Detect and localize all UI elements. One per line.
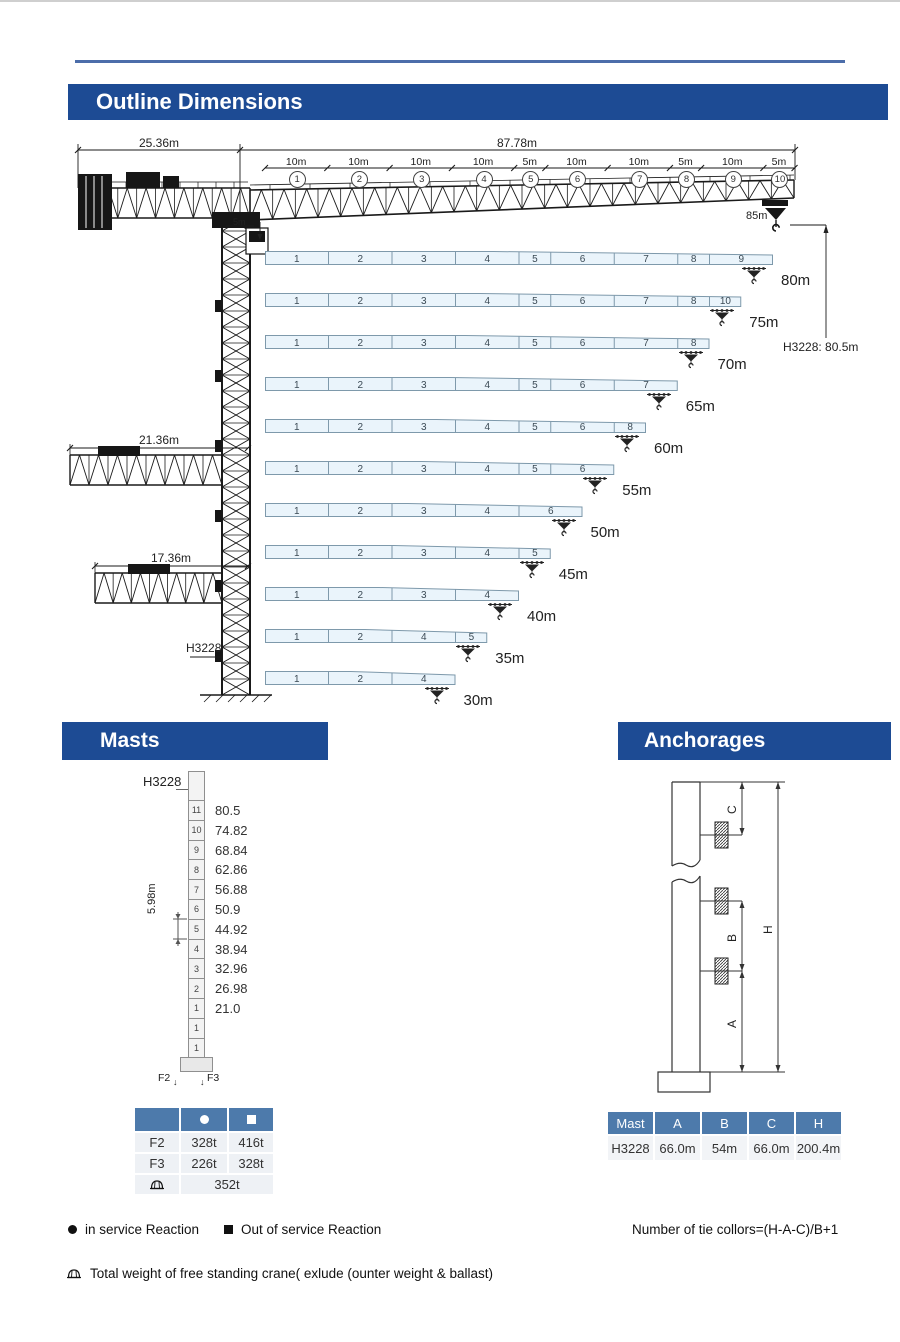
segment-length-label: 10m bbox=[619, 156, 659, 168]
jib-segment-number: 2 bbox=[357, 296, 363, 307]
reaction-f3-label: F3 bbox=[207, 1072, 219, 1084]
jib-length-label: 60m bbox=[654, 440, 683, 457]
masts-title: Masts bbox=[100, 729, 160, 753]
jib-segment-number: 9 bbox=[738, 254, 744, 265]
anchor-tie-collar-2 bbox=[715, 888, 728, 914]
jib-root-dim-label: 5m bbox=[233, 217, 246, 227]
mast-height-value: 32.96 bbox=[215, 961, 248, 976]
jib-segment-number: 4 bbox=[484, 590, 490, 601]
masts-table-total-icon bbox=[135, 1175, 179, 1194]
mast-height-value: 44.92 bbox=[215, 922, 248, 937]
jib-segment-number: 5 bbox=[532, 422, 538, 433]
mast-section-cell: 1 bbox=[188, 1038, 205, 1059]
jib-length-label: 40m bbox=[527, 608, 556, 625]
mast-height-value: 50.9 bbox=[215, 902, 240, 917]
outline-dimensions-header: Outline Dimensions bbox=[68, 84, 888, 120]
mast-model-label: H3228 bbox=[143, 774, 181, 789]
jib-segment-number: 3 bbox=[421, 422, 427, 433]
jib-config-bar: 1245 bbox=[265, 628, 487, 645]
jib-length-label: 30m bbox=[464, 692, 493, 709]
dim-a-label: A bbox=[725, 1020, 739, 1028]
counter-jib-dimension-label: 25.36m bbox=[119, 136, 199, 150]
legend-out-service: Out of service Reaction bbox=[224, 1222, 381, 1237]
jib-segment-number: 5 bbox=[532, 338, 538, 349]
jib-length-label: 75m bbox=[749, 314, 778, 331]
segment-length-label: 5m bbox=[510, 156, 550, 168]
jib-segment-number: 1 bbox=[294, 590, 300, 601]
jib-segment-number: 6 bbox=[580, 422, 586, 433]
jib-segment-number: 3 bbox=[421, 380, 427, 391]
tie-collar-formula-text: Number of tie collors=(H-A-C)/B+1 bbox=[632, 1222, 838, 1237]
crane-weight-icon bbox=[66, 1267, 82, 1280]
anchorages-table-header: C bbox=[749, 1112, 794, 1134]
legend-in-service-text: in service Reaction bbox=[85, 1222, 199, 1237]
jib-segment-number: 8 bbox=[691, 254, 697, 265]
jib-segment-number: 8 bbox=[691, 296, 697, 307]
segment-number-badge: 8 bbox=[678, 171, 695, 188]
jib-segment-number: 3 bbox=[421, 464, 427, 475]
mast-section-cell: 11 bbox=[188, 800, 205, 821]
anchorage-diagram: C B A H bbox=[600, 770, 880, 1100]
masts-table-circle-value: 226t bbox=[181, 1154, 227, 1173]
jib-segment-number: 1 bbox=[294, 254, 300, 265]
catalog-page: Outline Dimensions 25.36m 87.78m 85m H32… bbox=[0, 0, 900, 1342]
jib-config-bar: 123456 bbox=[265, 460, 614, 477]
segment-length-label: 10m bbox=[401, 156, 441, 168]
mast-section-cell: 5 bbox=[188, 919, 205, 940]
legend-total-weight-text: Total weight of free standing crane( exl… bbox=[90, 1266, 493, 1281]
jib-segment-number: 6 bbox=[548, 506, 554, 517]
segment-number-badge: 6 bbox=[569, 171, 586, 188]
legend-in-service: in service Reaction bbox=[68, 1222, 199, 1237]
jib-length-label: 50m bbox=[591, 524, 620, 541]
jib-segment-number: 5 bbox=[532, 464, 538, 475]
square-icon bbox=[224, 1225, 233, 1234]
legend-total-weight: Total weight of free standing crane( exl… bbox=[66, 1266, 493, 1281]
jib-segment-number: 1 bbox=[294, 506, 300, 517]
mast-section-cell: 10 bbox=[188, 820, 205, 841]
jib-segment-number: 7 bbox=[643, 380, 649, 391]
mast-height-value: 21.0 bbox=[215, 1001, 240, 1016]
mast-height-value: 38.94 bbox=[215, 942, 248, 957]
anchorages-table-header: A bbox=[655, 1112, 700, 1134]
anchorages-table-value: 66.0m bbox=[655, 1136, 700, 1160]
jib-segment-number: 3 bbox=[421, 254, 427, 265]
hook-trolley-icon bbox=[551, 518, 577, 537]
jib-config-bar: 124 bbox=[265, 670, 456, 687]
jib-segment-number: 1 bbox=[294, 548, 300, 559]
anchorages-table-value: H3228 bbox=[608, 1136, 653, 1160]
jib-segment-number: 1 bbox=[294, 632, 300, 643]
jib-segment-number: 7 bbox=[643, 296, 649, 307]
jib-segment-number: 4 bbox=[484, 296, 490, 307]
masts-table-total-value: 352t bbox=[181, 1175, 273, 1194]
segment-length-label: 10m bbox=[463, 156, 503, 168]
mast-section-cell: 4 bbox=[188, 939, 205, 960]
jib-segment-number: 4 bbox=[484, 422, 490, 433]
anchor-tie-collar-3 bbox=[715, 958, 728, 984]
jib-segment-number: 2 bbox=[357, 548, 363, 559]
jib-config-bar: 1234 bbox=[265, 586, 519, 603]
jib-dimension-label: 87.78m bbox=[477, 136, 557, 150]
jib-config-bar: 12345 bbox=[265, 544, 551, 561]
mast-height-value: 26.98 bbox=[215, 981, 248, 996]
tie-collar-formula: Number of tie collors=(H-A-C)/B+1 bbox=[632, 1222, 838, 1237]
jib-config-bar: 12346 bbox=[265, 502, 583, 519]
mast-base-block bbox=[180, 1057, 213, 1072]
jib-segment-number: 6 bbox=[580, 254, 586, 265]
mast-top-stub bbox=[188, 771, 205, 801]
jib-config-bar: 12345678 bbox=[265, 334, 710, 351]
anchorages-table-value: 54m bbox=[702, 1136, 747, 1160]
legend-out-service-text: Out of service Reaction bbox=[241, 1222, 381, 1237]
masts-header: Masts bbox=[62, 722, 328, 760]
jib-segment-number: 5 bbox=[532, 548, 538, 559]
jib-segment-number: 2 bbox=[357, 674, 363, 685]
reaction-f2-label: F2 bbox=[158, 1072, 170, 1084]
jib-segment-number: 1 bbox=[294, 338, 300, 349]
jib-segment-number: 2 bbox=[357, 254, 363, 265]
tower-model-label: H3228 bbox=[186, 641, 221, 655]
masts-table-row-label: F2 bbox=[135, 1133, 179, 1152]
page-top-rule bbox=[0, 0, 900, 2]
hook-trolley-icon bbox=[582, 476, 608, 495]
hook-trolley-icon bbox=[614, 434, 640, 453]
hook-trolley-icon bbox=[741, 266, 767, 285]
anchorages-table-value: 200.4m bbox=[796, 1136, 841, 1160]
jib-segment-number: 5 bbox=[469, 632, 475, 643]
hook-trolley-icon bbox=[424, 686, 450, 705]
mast-height-value: 68.84 bbox=[215, 843, 248, 858]
counter-jib-variant1-label: 21.36m bbox=[119, 433, 199, 447]
hook-trolley-icon bbox=[678, 350, 704, 369]
anchorages-table-header: Mast bbox=[608, 1112, 653, 1134]
f2-arrow-icon: ↓ bbox=[173, 1077, 178, 1087]
jib-segment-number: 6 bbox=[580, 380, 586, 391]
anchorages-table-header: B bbox=[702, 1112, 747, 1134]
jib-segment-number: 3 bbox=[421, 506, 427, 517]
jib-segment-number: 2 bbox=[357, 506, 363, 517]
jib-segment-number: 7 bbox=[643, 338, 649, 349]
jib-config-bar: 123456789 bbox=[265, 250, 773, 267]
mast-height-value: 62.86 bbox=[215, 862, 248, 877]
tower-height-label: H3228: 80.5m bbox=[783, 340, 858, 354]
hook-trolley-icon bbox=[519, 560, 545, 579]
mast-height-value: 74.82 bbox=[215, 823, 248, 838]
segment-length-label: 10m bbox=[557, 156, 597, 168]
mast-section-cell: 9 bbox=[188, 840, 205, 861]
jib-segment-number: 2 bbox=[357, 590, 363, 601]
mast-section-cell: 1 bbox=[188, 1018, 205, 1039]
hook-trolley-icon bbox=[487, 602, 513, 621]
segment-number-badge: 9 bbox=[725, 171, 742, 188]
jib-segment-number: 6 bbox=[580, 296, 586, 307]
header-accent-strip bbox=[75, 60, 845, 63]
jib-length-label: 80m bbox=[781, 272, 810, 289]
masts-table-header-blank bbox=[135, 1108, 179, 1131]
jib-length-label: 55m bbox=[622, 482, 651, 499]
circle-icon bbox=[68, 1225, 77, 1234]
anchorages-header: Anchorages bbox=[618, 722, 891, 760]
jib-segment-number: 4 bbox=[484, 464, 490, 475]
jib-segment-number: 7 bbox=[643, 254, 649, 265]
f3-arrow-icon: ↓ bbox=[200, 1077, 205, 1087]
jib-tip-height-label: 85m bbox=[746, 210, 767, 222]
jib-segment-number: 2 bbox=[357, 632, 363, 643]
jib-segment-number: 3 bbox=[421, 338, 427, 349]
mast-section-cell: 3 bbox=[188, 958, 205, 979]
hook-trolley-icon bbox=[455, 644, 481, 663]
jib-segment-number: 5 bbox=[532, 254, 538, 265]
mast-section-cell: 8 bbox=[188, 859, 205, 880]
masts-table-circle-value: 328t bbox=[181, 1133, 227, 1152]
segment-number-badge: 4 bbox=[476, 171, 493, 188]
segment-length-label: 10m bbox=[712, 156, 752, 168]
jib-segment-number: 1 bbox=[294, 422, 300, 433]
segment-length-label: 10m bbox=[338, 156, 378, 168]
jib-length-label: 45m bbox=[559, 566, 588, 583]
jib-segment-number: 1 bbox=[294, 296, 300, 307]
jib-segment-number: 4 bbox=[484, 506, 490, 517]
jib-segment-number: 3 bbox=[421, 548, 427, 559]
jib-segment-number: 4 bbox=[484, 254, 490, 265]
jib-segment-number: 5 bbox=[532, 380, 538, 391]
jib-segment-number: 2 bbox=[357, 338, 363, 349]
jib-segment-number: 10 bbox=[720, 296, 732, 307]
jib-segment-number: 2 bbox=[357, 422, 363, 433]
segment-number-badge: 1 bbox=[289, 171, 306, 188]
jib-length-label: 65m bbox=[686, 398, 715, 415]
masts-table-header-circle-icon bbox=[181, 1108, 227, 1131]
anchorages-title: Anchorages bbox=[644, 729, 765, 753]
jib-segment-number: 1 bbox=[294, 380, 300, 391]
jib-segment-number: 4 bbox=[484, 548, 490, 559]
anchorages-table-header: H bbox=[796, 1112, 841, 1134]
mast-section-cell: 1 bbox=[188, 998, 205, 1019]
jib-segment-number: 4 bbox=[484, 380, 490, 391]
masts-table-row-label: F3 bbox=[135, 1154, 179, 1173]
dim-b-label: B bbox=[725, 934, 739, 942]
dim-c-label: C bbox=[725, 805, 739, 814]
anchor-tie-collar-1 bbox=[715, 822, 728, 848]
counter-jib-variant2-label: 17.36m bbox=[131, 551, 211, 565]
mast-height-value: 80.5 bbox=[215, 803, 240, 818]
masts-table-header-square-icon bbox=[229, 1108, 273, 1131]
jib-segment-number: 4 bbox=[484, 338, 490, 349]
jib-config-bar: 1234568 bbox=[265, 418, 646, 435]
segment-length-label: 5m bbox=[666, 156, 706, 168]
mast-height-value: 56.88 bbox=[215, 882, 248, 897]
jib-segment-number: 2 bbox=[357, 464, 363, 475]
segment-length-label: 5m bbox=[759, 156, 799, 168]
jib-config-bar: 1234567 bbox=[265, 376, 678, 393]
masts-table-square-value: 416t bbox=[229, 1133, 273, 1152]
jib-segment-number: 5 bbox=[532, 296, 538, 307]
jib-segment-number: 1 bbox=[294, 674, 300, 685]
mast-section-dim-bracket bbox=[170, 912, 190, 946]
segment-number-badge: 2 bbox=[351, 171, 368, 188]
hook-trolley-icon bbox=[709, 308, 735, 327]
mast-section-cell: 7 bbox=[188, 879, 205, 900]
outline-dimensions-title: Outline Dimensions bbox=[96, 89, 303, 115]
jib-segment-number: 4 bbox=[421, 632, 427, 643]
jib-segment-number: 8 bbox=[691, 338, 697, 349]
anchorages-table-value: 66.0m bbox=[749, 1136, 794, 1160]
jib-segment-number: 4 bbox=[421, 674, 427, 685]
mast-section-cell: 2 bbox=[188, 978, 205, 999]
jib-segment-number: 1 bbox=[294, 464, 300, 475]
masts-table-square-value: 328t bbox=[229, 1154, 273, 1173]
jib-config-bar: 1234567810 bbox=[265, 292, 741, 309]
jib-length-label: 70m bbox=[718, 356, 747, 373]
jib-segment-number: 6 bbox=[580, 464, 586, 475]
jib-segment-number: 2 bbox=[357, 380, 363, 391]
hook-trolley-icon bbox=[646, 392, 672, 411]
mast-label-leader bbox=[176, 789, 188, 790]
segment-length-label: 10m bbox=[276, 156, 316, 168]
jib-length-label: 35m bbox=[495, 650, 524, 667]
mast-section-cell: 6 bbox=[188, 899, 205, 920]
jib-segment-number: 3 bbox=[421, 296, 427, 307]
jib-segment-number: 6 bbox=[580, 338, 586, 349]
mast-section-dim-label: 5.98m bbox=[146, 883, 158, 914]
jib-segment-number: 8 bbox=[627, 422, 633, 433]
jib-segment-number: 3 bbox=[421, 590, 427, 601]
dim-h-label: H bbox=[761, 925, 775, 934]
